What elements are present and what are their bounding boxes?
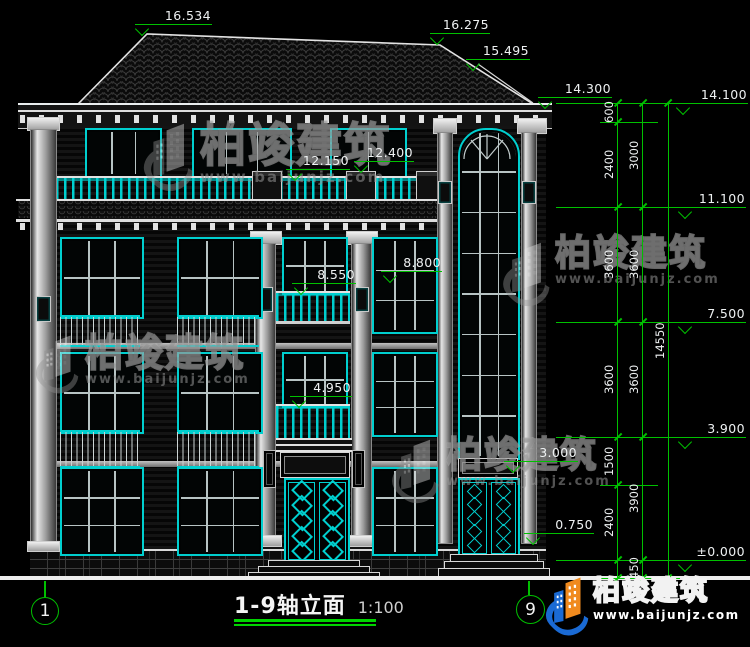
elev-label: 14.100 [701,87,747,102]
window-pane [481,254,498,293]
window-pane [208,471,233,497]
dim-chain-line-outer [668,103,669,578]
brand-logo: 柏竣建筑 www.baijunjz.com [541,576,740,638]
window-pane [90,356,114,392]
window-pane [462,213,479,252]
elev-marker-level3: 7.500 [676,307,746,323]
window-pane [234,241,259,277]
elev-marker-tower-hip: 15.495 [466,44,530,60]
dim-value: 3600 [602,207,616,322]
window-pane [481,376,498,415]
window-pane [481,213,498,252]
pilaster-base [27,541,60,552]
window-pane [396,471,414,497]
window-pane [208,356,233,392]
window-pane [462,417,479,456]
window-pane [234,279,259,315]
elev-label: 16.275 [443,17,489,32]
elev-marker-balcony3: 8.550 [292,268,356,284]
window-pane [499,295,516,334]
elev-label: 12.150 [303,153,349,168]
window-pane [181,394,206,430]
window-pane [64,471,88,497]
window-pane [396,301,414,330]
window-pane [181,241,206,277]
door-leaf [491,482,516,554]
wall-sconce [263,450,276,488]
window-grid [64,356,140,430]
elev-marker-attic-sill: 12.400 [354,146,414,162]
elev-label: 3.900 [707,421,745,436]
axis-number: 1 [40,601,51,621]
axis-line-1 [44,581,46,597]
window-pane [499,335,516,374]
window-grid [462,132,516,456]
window-pane [306,356,324,379]
elev-label: 15.495 [483,43,529,58]
column-ornament [355,287,369,312]
window-right-2f [372,352,438,437]
dim-value: 2400 [602,485,616,560]
window-left1-3f [60,237,144,319]
elev-marker-porch: 0.750 [524,518,594,534]
window-pane [181,526,206,552]
balustrade-pedestal [346,171,376,201]
window-grid [376,356,434,433]
door-leaf [319,482,346,560]
window-pane [462,376,479,415]
window-guard-rail [177,430,259,468]
window-left2-3f [177,237,263,319]
window-pane [64,241,88,277]
dim-value: 2400 [602,122,616,207]
window-right-1f [372,467,438,556]
door-entablature [276,438,352,452]
cornice-molding [18,110,552,112]
elev-label: 0.750 [555,517,593,532]
window-pane [416,356,434,381]
elev-marker-ridge-rear: 16.275 [430,18,490,34]
window-pane [208,526,233,552]
axis-line-9 [528,581,530,595]
window-pane [481,335,498,374]
dim-value: 1500 [602,437,616,485]
window-grid [64,241,140,315]
window-pane [416,271,434,300]
window-guard-rail [177,315,259,347]
dim-value: 14550 [653,103,667,578]
dim-chain-line-inner [617,103,618,578]
balcony-balustrade-3f [276,291,350,324]
window-pane [499,173,516,212]
elev-marker-ridge-main: 16.534 [135,9,212,25]
brand-url: www.baijunjz.com [593,608,740,622]
arch-fan-mullions [460,130,514,160]
elev-label: 4.950 [313,380,351,395]
elev-label: 3.000 [539,445,577,460]
balustrade-pedestal [252,171,282,201]
pilaster-ornament [36,296,51,322]
window-pane [416,526,434,552]
attic-window-1 [85,128,162,178]
window-pane [64,526,88,552]
window-pane [208,279,233,315]
cad-elevation-drawing: 柏竣建筑 www.baijunjz.com 柏竣建筑 www.baijunjz.… [0,0,750,647]
elev-marker-level1: ±0.000 [676,545,746,561]
brand-name: 柏竣建筑 [593,576,740,608]
dim-value: 3600 [627,322,641,437]
window-pane [113,132,135,174]
window-grid [181,356,259,430]
elev-marker-door-head: 3.000 [504,446,578,462]
window-grid [196,132,288,174]
door-diamond-panel [467,537,483,553]
window-pane [462,335,479,374]
elev-label: 14.300 [565,81,611,96]
window-grid [376,471,434,552]
elev-label: 8.550 [317,267,355,282]
window-grid [89,132,158,174]
title-underline-2 [234,624,376,626]
window-pane [90,499,114,525]
lower-cornice [16,199,453,233]
elev-label: 11.100 [699,191,745,206]
window-pane [416,408,434,433]
axis-number: 9 [525,600,536,620]
elev-marker-win3-sill: 8.800 [381,256,442,272]
window-pane [326,241,344,265]
window-pane [481,173,498,212]
window-pane [208,241,233,277]
window-pane [181,279,206,315]
window-pane [376,526,394,552]
window-pane [376,356,394,381]
window-pane [234,394,259,430]
window-pane [90,394,114,430]
window-pane [181,356,206,392]
dim-value: 3000 [627,103,641,207]
window-pane [396,271,414,300]
window-pane [136,132,158,174]
window-pane [90,526,114,552]
left-pilaster [30,129,57,543]
dim-value: 600 [602,103,616,122]
door-leaf [288,482,315,560]
wall-sconce [352,450,365,488]
window-pane [64,279,88,315]
elev-label: 7.500 [707,306,745,321]
window-guard-rail [60,430,140,468]
window-pane [416,382,434,407]
window-pane [234,499,259,525]
window-pane [181,471,206,497]
dim-value: 3600 [627,207,641,322]
window-pane [326,356,344,379]
window-pane [116,526,140,552]
window-grid [181,241,259,315]
window-pane [116,241,140,277]
tower-door [458,478,520,558]
window-pane [376,408,394,433]
tower-pilaster-ornament [522,181,536,204]
window-pane [258,132,288,174]
window-pane [499,254,516,293]
door-leaf [462,482,487,554]
elev-line [538,97,612,99]
title-underline [234,619,376,622]
window-pane [64,394,88,430]
window-pane [396,408,414,433]
title-scale: 1:100 [358,598,404,617]
window-pane [376,382,394,407]
window-pane [196,132,226,174]
brand-logo-icon [541,576,589,638]
window-pane [416,499,434,525]
elev-line [135,24,212,26]
dim-value: 3600 [602,322,616,437]
elev-label: 12.400 [367,145,413,160]
dim-value: 3900 [627,437,641,560]
window-right-3f [372,237,438,334]
window-pane [286,241,304,265]
window-pane [116,356,140,392]
window-pane [499,376,516,415]
window-pane [499,213,516,252]
window-pane [462,173,479,212]
window-pane [116,471,140,497]
elev-label: 8.800 [403,255,441,270]
window-pane [116,394,140,430]
dim-chain-line-middle [642,103,643,578]
window-grid [181,471,259,552]
window-left2-1f [177,467,263,556]
window-pane [396,382,414,407]
window-guard-rail [60,315,140,347]
window-pane [227,132,257,174]
window-pane [234,526,259,552]
window-pane [208,394,233,430]
window-pane [376,471,394,497]
window-pane [181,499,206,525]
window-pane [64,356,88,392]
elev-label: ±0.000 [696,544,745,559]
window-pane [416,471,434,497]
window-pane [416,301,434,330]
cornice-tile-strip [18,201,451,218]
balcony-window-3f [282,237,348,295]
elev-marker-level2: 3.900 [676,422,746,438]
axis-bubble-1: 1 [31,597,59,625]
window-pane [116,499,140,525]
window-pane [116,279,140,315]
window-pane [481,417,498,456]
cornice-dentils [20,115,550,123]
elev-marker-balcony2: 4.950 [290,381,352,397]
drawing-title: 1-9轴立面 1:100 [234,588,404,620]
window-pane [208,499,233,525]
tower-arch-window [458,128,520,460]
door-frieze-panel [280,452,350,478]
elev-marker-eave-top: 14.100 [674,88,748,104]
window-pane [90,471,114,497]
window-pane [376,499,394,525]
window-pane [396,356,414,381]
window-pane [90,279,114,315]
window-pane [376,301,394,330]
elev-marker-level4: 11.100 [676,192,746,208]
window-pane [234,356,259,392]
window-pane [396,499,414,525]
window-pane [462,254,479,293]
window-pane [286,356,304,379]
window-pane [481,295,498,334]
window-pane [89,132,111,174]
window-pane [90,241,114,277]
elev-marker-eave-fascia: 14.300 [538,82,612,98]
tower-step [438,568,550,576]
elev-label: 16.534 [165,8,211,23]
window-pane [396,526,414,552]
tower-pilaster-ornament [438,181,452,204]
window-pane [462,295,479,334]
window-left1-2f [60,352,144,434]
elev-marker-attic-rail: 12.150 [286,154,350,170]
window-pane [306,241,324,265]
cornice-fascia [16,219,453,222]
title-text: 1-9轴立面 [234,588,346,620]
window-pane [64,499,88,525]
cornice-dentils [20,223,450,230]
entrance-double-door [284,478,350,564]
window-left2-2f [177,352,263,434]
window-left1-1f [60,467,144,556]
door-diamond-panel [496,537,512,553]
window-grid [64,471,140,552]
window-pane [234,471,259,497]
